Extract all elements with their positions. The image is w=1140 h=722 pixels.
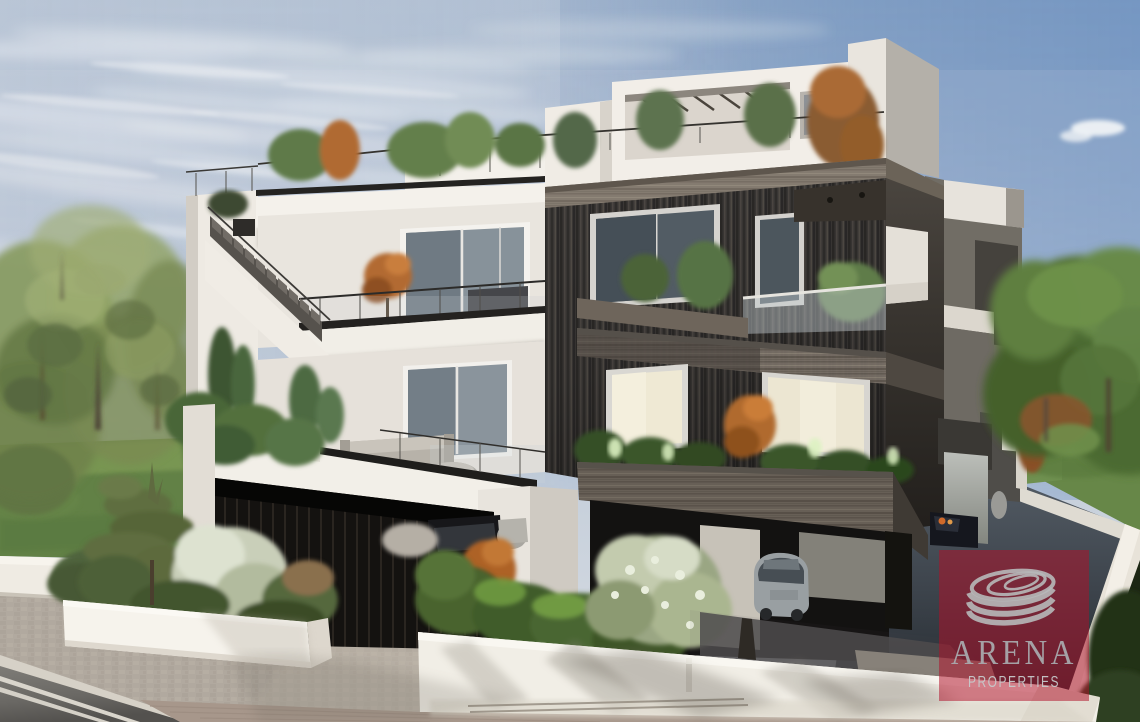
svg-text:PROPERTIES: PROPERTIES bbox=[968, 674, 1060, 691]
svg-text:ARENA: ARENA bbox=[951, 633, 1077, 672]
